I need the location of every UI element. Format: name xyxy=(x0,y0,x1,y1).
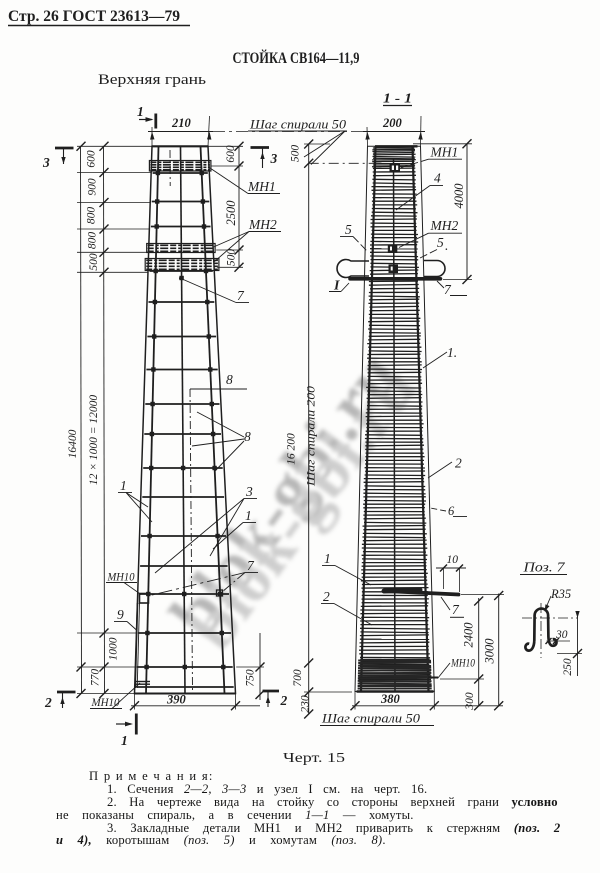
svg-text:3: 3 xyxy=(270,151,278,166)
svg-text:МН10: МН10 xyxy=(107,570,135,584)
svg-text:Шаг спирали 50: Шаг спирали 50 xyxy=(321,712,421,726)
svg-text:16 200: 16 200 xyxy=(286,433,298,465)
svg-text:200: 200 xyxy=(382,116,403,130)
svg-text:800: 800 xyxy=(86,207,98,225)
svg-text:210: 210 xyxy=(171,116,192,130)
svg-text:3000: 3000 xyxy=(483,638,497,665)
svg-text:800: 800 xyxy=(87,232,99,250)
svg-text:2: 2 xyxy=(44,695,52,710)
svg-text:770: 770 xyxy=(90,669,102,687)
svg-text:5: 5 xyxy=(345,222,352,237)
svg-text:500: 500 xyxy=(226,249,238,267)
svg-text:1 - 1: 1 - 1 xyxy=(383,91,412,106)
svg-text:4000: 4000 xyxy=(452,183,466,209)
svg-text:2500: 2500 xyxy=(224,200,238,226)
svg-text:700: 700 xyxy=(292,669,304,687)
svg-text:8: 8 xyxy=(226,372,233,387)
svg-text:500: 500 xyxy=(290,145,302,163)
svg-text:Стр. 26 ГОСТ 23613—79: Стр. 26 ГОСТ 23613—79 xyxy=(8,8,180,25)
svg-text:600: 600 xyxy=(225,145,237,163)
svg-text:10: 10 xyxy=(447,554,459,566)
svg-text:2: 2 xyxy=(280,693,288,708)
svg-text:6: 6 xyxy=(448,504,455,518)
svg-text:Поз. 7: Поз. 7 xyxy=(522,560,566,575)
svg-text:9: 9 xyxy=(117,607,124,622)
svg-text:16400: 16400 xyxy=(67,429,79,458)
svg-text:2: 2 xyxy=(455,456,462,471)
svg-text:Шаг спирали 50: Шаг спирали 50 xyxy=(249,118,347,132)
svg-text:3: 3 xyxy=(42,155,50,170)
svg-text:600: 600 xyxy=(86,150,98,168)
svg-text:7: 7 xyxy=(237,288,245,303)
svg-text:300: 300 xyxy=(464,692,476,711)
svg-text:1: 1 xyxy=(324,551,331,566)
svg-text:1: 1 xyxy=(120,478,127,493)
svg-text:МН10: МН10 xyxy=(91,695,120,709)
svg-text:390: 390 xyxy=(166,693,187,707)
svg-text:4: 4 xyxy=(434,171,441,186)
svg-text:750: 750 xyxy=(245,669,257,687)
svg-text:Шаг спирали 200: Шаг спирали 200 xyxy=(306,386,318,487)
svg-text:Верхняя грань: Верхняя грань xyxy=(98,72,207,88)
svg-text:7: 7 xyxy=(444,282,452,297)
svg-text:230: 230 xyxy=(300,695,312,713)
svg-text:МН1: МН1 xyxy=(430,145,459,160)
svg-text:500: 500 xyxy=(88,253,100,271)
svg-text:СТОЙКА СВ164—11,9: СТОЙКА СВ164—11,9 xyxy=(233,50,360,67)
svg-text:8: 8 xyxy=(244,429,251,444)
svg-text:1000: 1000 xyxy=(108,637,120,660)
svg-text:2400: 2400 xyxy=(462,622,476,648)
svg-text:250: 250 xyxy=(562,658,574,676)
svg-text:1: 1 xyxy=(137,104,144,119)
svg-text:7: 7 xyxy=(452,602,460,617)
svg-text:12 × 1000 = 12000: 12 × 1000 = 12000 xyxy=(88,395,100,486)
svg-text:Черт. 15: Черт. 15 xyxy=(283,750,346,765)
svg-text:МН10: МН10 xyxy=(450,658,475,670)
svg-text:.: . xyxy=(445,238,448,253)
svg-text:5: 5 xyxy=(437,235,444,250)
svg-text:380: 380 xyxy=(380,692,401,706)
svg-text:R35: R35 xyxy=(550,587,571,601)
svg-text:МН2: МН2 xyxy=(248,217,277,232)
svg-text:3: 3 xyxy=(245,484,253,499)
svg-text:МН1: МН1 xyxy=(247,179,276,194)
svg-text:1: 1 xyxy=(245,508,252,523)
svg-text:МН2: МН2 xyxy=(430,218,459,233)
svg-text:2: 2 xyxy=(323,589,330,604)
svg-text:900: 900 xyxy=(87,178,99,196)
svg-text:1.: 1. xyxy=(447,345,457,360)
svg-text:1: 1 xyxy=(121,733,128,748)
